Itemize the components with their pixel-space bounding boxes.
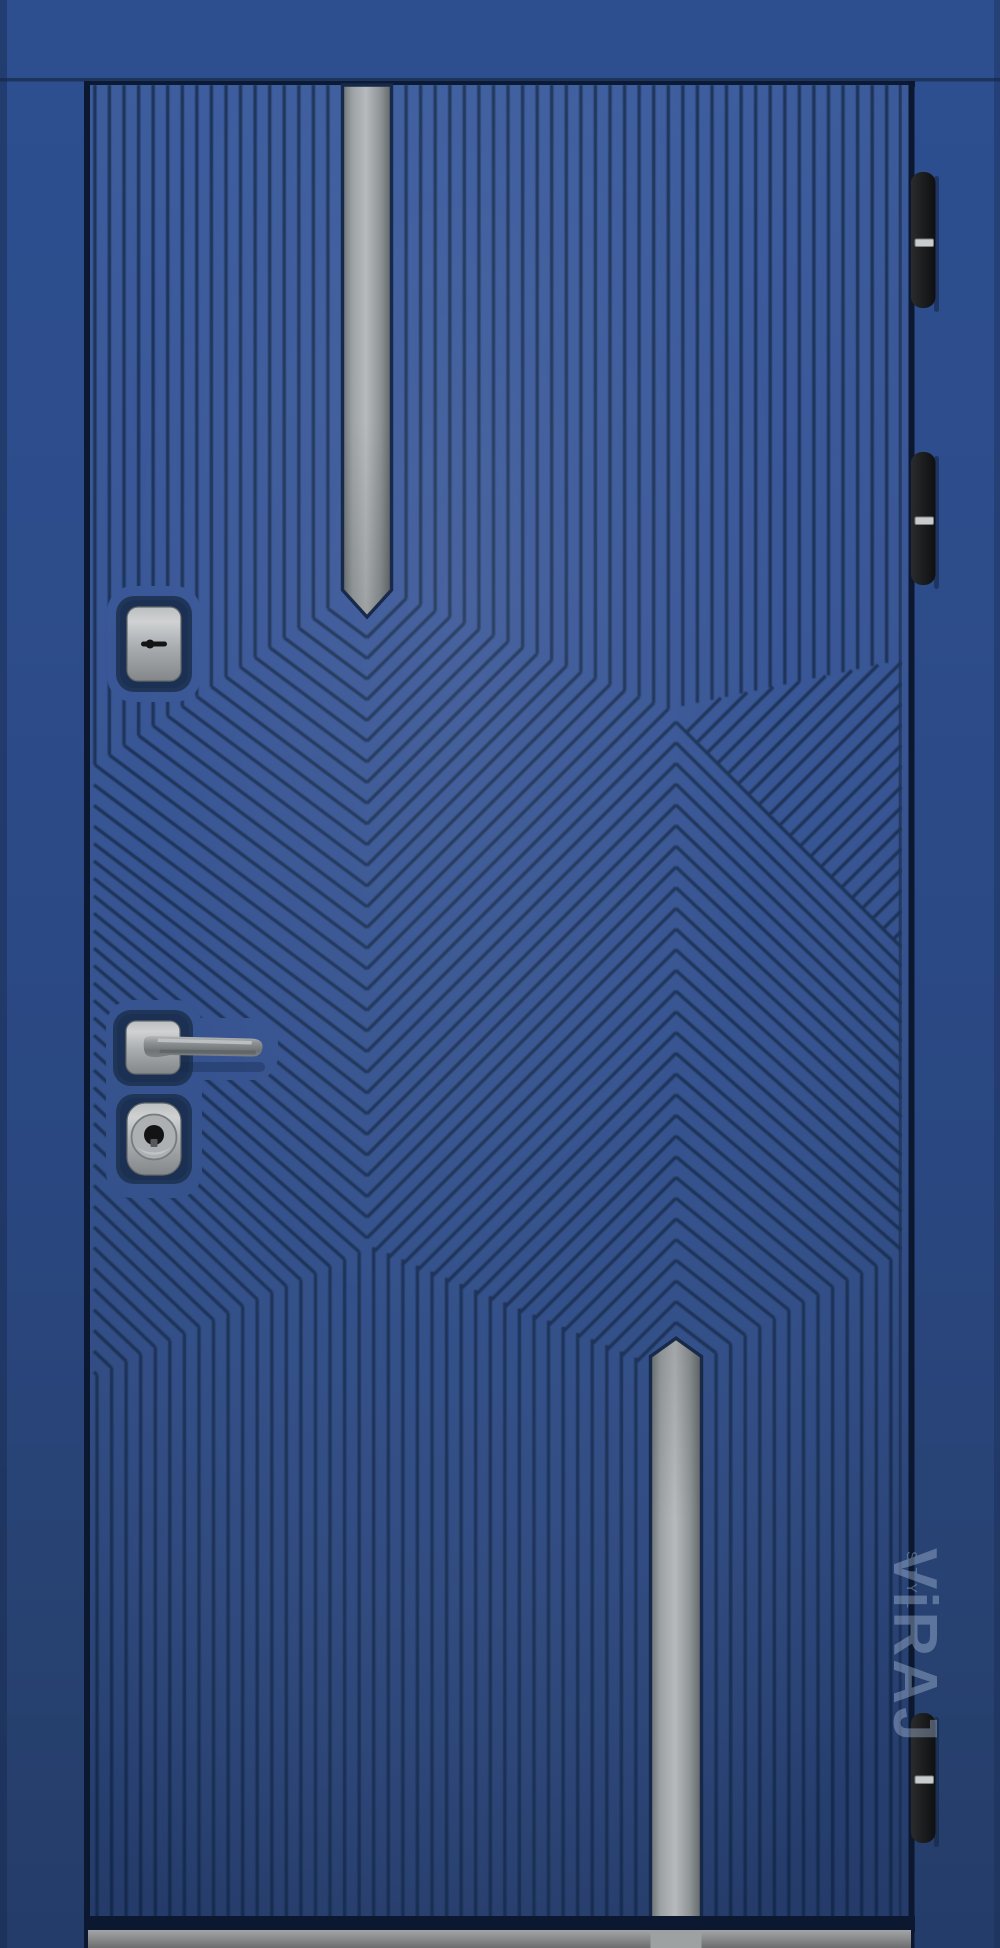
svg-text:STYLE: STYLE — [903, 1551, 920, 1631]
